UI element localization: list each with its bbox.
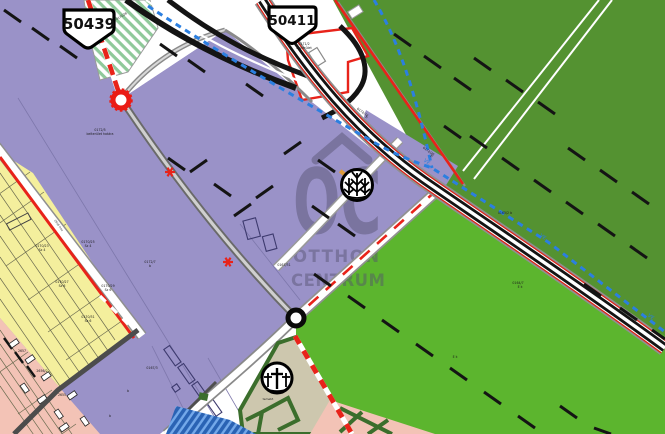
micro-label: 0167/31 — [277, 263, 290, 267]
micro-label: belterület határa — [87, 132, 114, 136]
micro-label: Sz 4 — [85, 244, 92, 248]
cemetery-icon[interactable] — [262, 363, 292, 393]
micro-label: 2655 — [58, 393, 66, 397]
micro-label: 0165/2 b — [498, 211, 512, 215]
micro-label: E k — [518, 285, 523, 289]
micro-label: 2656/2 — [36, 369, 47, 373]
micro-label: b — [127, 389, 129, 393]
junction-node-black[interactable] — [288, 310, 304, 326]
micro-label: 2657 — [18, 349, 26, 353]
micro-label: b — [149, 264, 151, 268]
micro-label: Sz 4 — [39, 248, 46, 252]
micro-label: E k — [453, 355, 458, 359]
micro-label: belterület — [296, 46, 312, 50]
micro-label: Sz 6 — [105, 288, 112, 292]
micro-label: Sz 6 — [85, 319, 92, 323]
micro-label: Sz 6 — [59, 284, 66, 288]
micro-label: temető — [263, 397, 274, 401]
tree-park-icon[interactable] — [342, 170, 373, 201]
micro-label: 0167/3 — [146, 366, 157, 370]
badge-50411-label: 50411 — [269, 13, 316, 29]
junction-node-red[interactable] — [111, 90, 132, 111]
zoning-map[interactable]: OC OTTHON CENTRUM — [0, 0, 665, 434]
micro-label: b — [109, 414, 111, 418]
badge-50439-label: 50439 — [63, 15, 115, 33]
map-viewport[interactable]: OC OTTHON CENTRUM — [0, 0, 665, 434]
